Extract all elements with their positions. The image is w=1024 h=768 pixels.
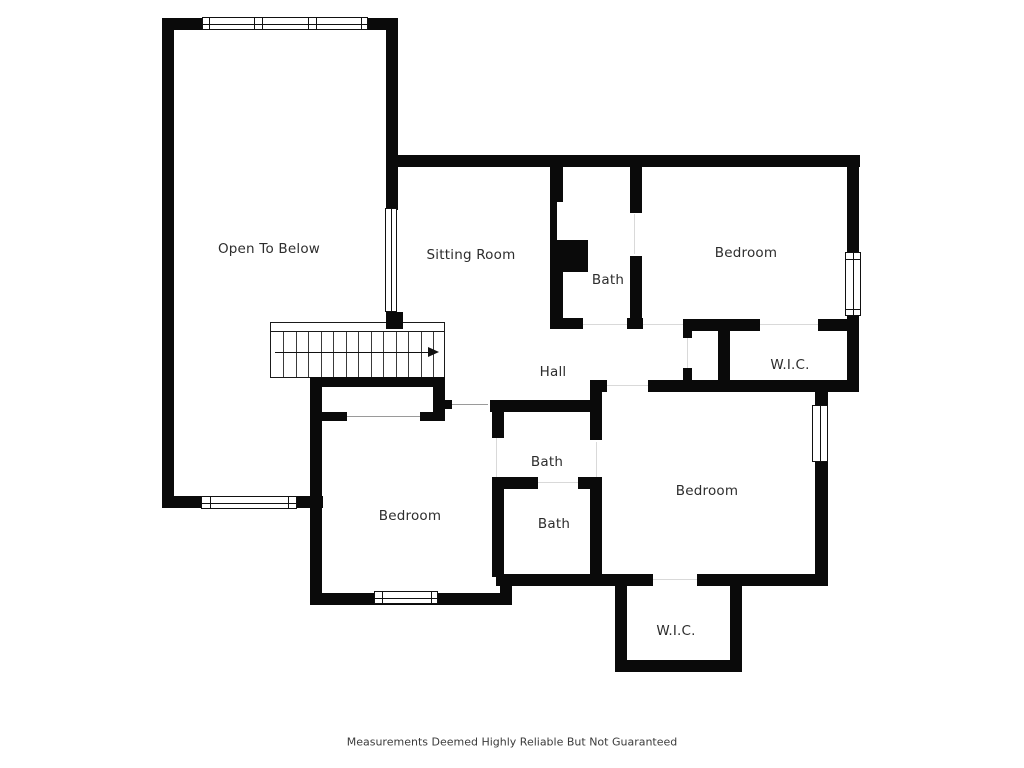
window-mullion	[316, 18, 317, 29]
wall-segment	[578, 477, 602, 489]
window-mullion	[288, 497, 289, 508]
window-mullion	[431, 592, 432, 603]
wall-segment	[386, 312, 403, 329]
door-opening-line	[496, 438, 497, 478]
wall-segment	[550, 318, 583, 329]
window-mullion	[361, 18, 362, 29]
window-mullion	[308, 18, 309, 29]
room-label-bedroom-lower-right: Bedroom	[676, 483, 738, 499]
door-opening-line	[643, 324, 683, 325]
stair-tread	[308, 332, 309, 377]
wall-segment	[492, 412, 504, 438]
floor-plan-canvas: Open To Below Sitting Room Bath Bedroom …	[0, 0, 1024, 768]
door-opening-line	[607, 385, 648, 386]
wall-segment	[162, 18, 174, 508]
window-mullion	[254, 18, 255, 29]
door-opening-line	[687, 336, 688, 369]
room-label-open-to-below: Open To Below	[218, 241, 320, 257]
room-label-wic-lower: W.I.C.	[656, 623, 695, 639]
stair-tread	[396, 332, 397, 377]
room-label-sitting-room: Sitting Room	[427, 247, 516, 263]
bath-fixture-block	[550, 240, 588, 272]
wall-notch	[557, 202, 564, 240]
window-glass-line	[820, 406, 821, 461]
wall-segment	[590, 478, 602, 584]
wall-segment	[386, 18, 398, 210]
wall-segment	[313, 377, 445, 387]
stair-tread	[408, 332, 409, 377]
room-label-bath-middle: Bath	[531, 454, 563, 470]
window-glass-line	[202, 503, 296, 504]
window-symbol	[385, 208, 397, 312]
room-label-wic-upper: W.I.C.	[770, 357, 809, 373]
disclaimer-text: Measurements Deemed Highly Reliable But …	[347, 736, 678, 749]
door-leaf-line	[452, 404, 488, 405]
stairs-direction-arrow	[428, 347, 439, 357]
staircase	[270, 322, 445, 378]
room-label-bath-upper: Bath	[592, 272, 624, 288]
window-glass-line	[853, 253, 854, 315]
wall-segment	[492, 477, 538, 489]
window-mullion	[846, 259, 860, 260]
door-opening-line	[596, 442, 597, 478]
window-symbol	[201, 496, 297, 509]
wall-segment	[313, 412, 347, 421]
window-mullion	[382, 592, 383, 603]
wall-segment	[496, 574, 653, 586]
door-opening-line	[653, 579, 697, 580]
room-label-bedroom-upper-right: Bedroom	[715, 245, 777, 261]
window-mullion	[209, 18, 210, 29]
stair-tread	[371, 332, 372, 377]
window-mullion	[262, 18, 263, 29]
stair-tread	[358, 332, 359, 377]
wall-segment	[630, 167, 642, 213]
wall-segment	[420, 412, 445, 421]
wall-segment	[630, 256, 642, 329]
wall-segment	[386, 155, 860, 167]
window-mullion	[210, 497, 211, 508]
door-jamb-nub	[443, 400, 452, 409]
stair-tread	[333, 332, 334, 377]
wall-segment	[697, 574, 828, 586]
room-label-bath-lower: Bath	[538, 516, 570, 532]
door-opening-line	[583, 324, 628, 325]
stair-tread	[346, 332, 347, 377]
window-symbol	[202, 17, 368, 30]
wall-segment	[683, 330, 692, 338]
wall-segment	[492, 489, 504, 577]
stair-tread	[383, 332, 384, 377]
wall-segment	[615, 580, 627, 672]
room-label-bedroom-lower-left: Bedroom	[379, 508, 441, 524]
stair-tread	[283, 332, 284, 377]
wall-segment	[490, 400, 602, 412]
window-symbol	[812, 405, 828, 462]
door-opening-line	[538, 482, 578, 483]
door-opening-line	[634, 214, 635, 254]
window-glass-line	[391, 209, 392, 311]
window-symbol	[845, 252, 861, 316]
window-glass-line	[203, 24, 367, 25]
stair-tread	[296, 332, 297, 377]
stair-tread	[321, 332, 322, 377]
window-mullion	[846, 309, 860, 310]
window-symbol	[374, 591, 438, 604]
window-glass-line	[375, 598, 437, 599]
door-opening-line	[760, 324, 818, 325]
stairs-run-line	[275, 352, 429, 353]
room-label-hall: Hall	[540, 364, 567, 380]
wall-segment	[615, 660, 742, 672]
wall-segment	[730, 580, 742, 672]
stair-tread	[421, 332, 422, 377]
closet-door-line	[347, 416, 420, 417]
